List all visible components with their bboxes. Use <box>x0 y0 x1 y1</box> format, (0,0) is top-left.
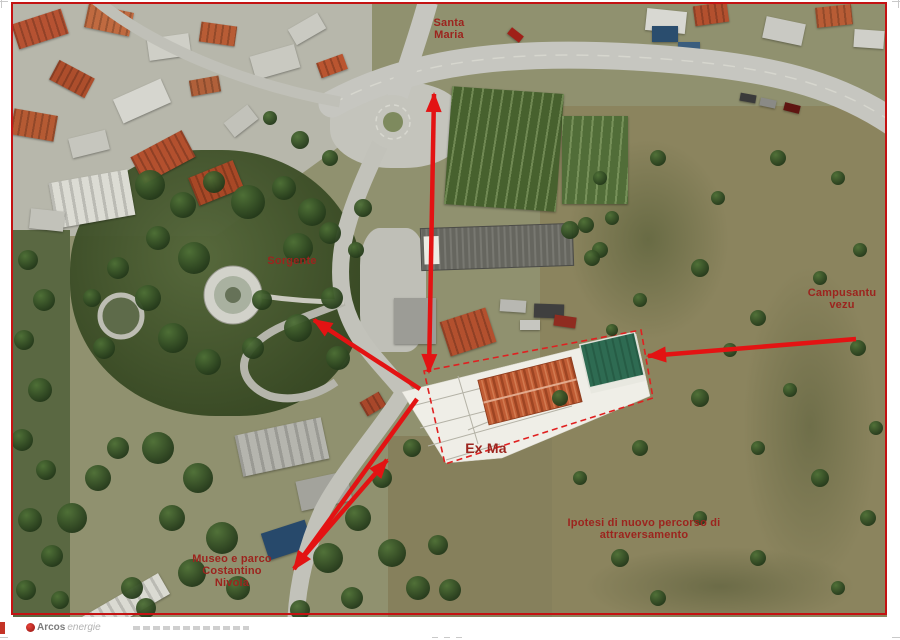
tree-canopy <box>206 522 238 554</box>
paved-plaza <box>330 82 466 168</box>
building-roof <box>853 29 884 49</box>
label-line: Costantino <box>172 565 292 577</box>
building-roof <box>520 320 540 330</box>
label-ipotesi-percorso: Ipotesi di nuovo percorso di attraversam… <box>552 517 736 541</box>
park-area <box>70 150 362 416</box>
label-sorgente: Sorgente <box>254 255 330 267</box>
label-line: Campusantu <box>794 287 890 299</box>
tree-canopy <box>159 505 185 531</box>
label-campusantu-vezu: Campusantu vezu <box>794 287 890 311</box>
tree-canopy <box>345 505 371 531</box>
building-roof <box>440 307 497 356</box>
tree-canopy <box>107 437 129 459</box>
arrow-museo-to-site <box>298 460 387 563</box>
margin-top <box>0 0 900 4</box>
crop-mark <box>456 637 462 638</box>
logo-text-bold: Arcos <box>37 622 65 633</box>
label-santa-maria: Santa Maria <box>416 17 482 41</box>
tree-canopy <box>354 199 372 217</box>
scrubland-south <box>388 436 552 640</box>
building-roof <box>359 392 386 417</box>
label-line: Museo e parco <box>172 553 292 565</box>
building-roof <box>295 471 352 511</box>
tree-canopy <box>183 463 213 493</box>
building-roof <box>678 42 700 56</box>
label-museo-nivola: Museo e parco Costantino Nivola <box>172 553 292 589</box>
footer: Arcos energie <box>26 622 249 633</box>
building-roof <box>235 417 330 476</box>
crop-mark <box>1 0 2 8</box>
paved-forecourt <box>360 228 426 352</box>
crop-mark <box>444 637 450 638</box>
footer-tagline-illegible <box>133 626 249 630</box>
tree-canopy <box>341 587 363 609</box>
arcos-logo-icon <box>26 623 35 632</box>
tree-canopy <box>85 465 111 491</box>
building-roof <box>762 16 806 46</box>
site-plan-page: Santa Maria Sorgente Campusantu vezu Ex … <box>0 0 900 640</box>
margin-right <box>887 0 900 640</box>
building-roof <box>747 58 779 79</box>
tree-canopy <box>136 598 156 618</box>
label-line: Maria <box>416 29 482 41</box>
label-line: vezu <box>794 299 890 311</box>
aerial-map: Santa Maria Sorgente Campusantu vezu Ex … <box>0 0 900 640</box>
label-line: Ex Ma <box>450 441 522 456</box>
building-roof <box>739 93 756 104</box>
crop-mark <box>432 637 438 638</box>
label-line: Nivola <box>172 577 292 589</box>
building-roof <box>652 26 678 42</box>
tree-canopy <box>142 432 174 464</box>
label-line: Santa <box>416 17 482 29</box>
label-line: attraversamento <box>552 529 736 541</box>
building-roof <box>507 27 524 43</box>
crop-mark <box>0 637 8 638</box>
margin-left <box>0 0 13 640</box>
registration-mark <box>0 622 5 634</box>
tree-canopy <box>313 543 343 573</box>
crop-mark <box>892 637 900 638</box>
crop-mark <box>898 0 899 8</box>
label-line: Ipotesi di nuovo percorso di <box>552 517 736 529</box>
scrubland <box>540 106 900 640</box>
logo-text-light: energie <box>67 622 100 633</box>
building-roof <box>645 8 687 34</box>
building-roof <box>500 299 527 313</box>
label-ex-ma: Ex Ma <box>450 441 522 456</box>
building-roof <box>815 4 853 28</box>
label-line: Sorgente <box>254 255 330 267</box>
tree-canopy <box>121 577 143 599</box>
building-roof <box>693 2 729 27</box>
